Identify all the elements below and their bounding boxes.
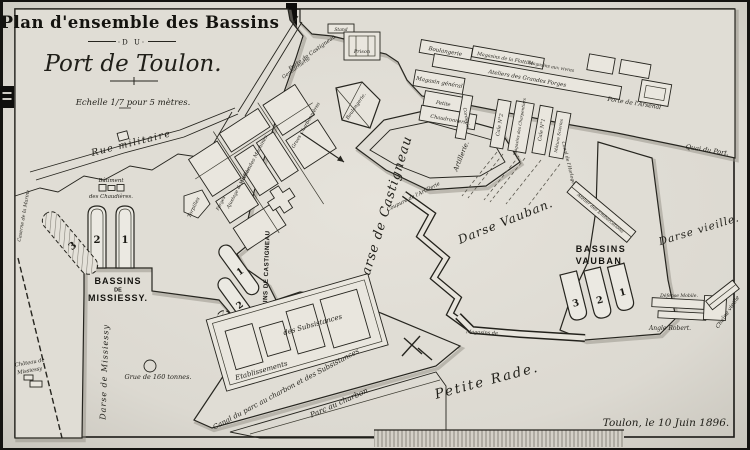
label-angle-robert: Angle Robert.	[648, 325, 691, 332]
title-du: ·D U·	[118, 39, 146, 47]
basin-number-missiessy-1: 1	[122, 235, 129, 246]
prison-building: Prison	[344, 32, 380, 60]
label-bassins-missiessy-3: MISSIESSY.	[88, 293, 148, 303]
map-canvas: Rue militaire Bâtiment des Chaudières. C…	[0, 0, 750, 450]
label-grue-160-tonnes: Grue de 160 tonnes.	[124, 373, 191, 381]
label-bassins-missiessy-1: BASSINS	[94, 276, 141, 286]
map-subtitle: Port de Toulon.	[43, 51, 221, 77]
bottom-shore-band	[374, 430, 624, 447]
label-defense-mobile: Défense Mobile.	[659, 292, 698, 299]
label-batiment-chaudieres-2: des Chaudières.	[89, 193, 133, 200]
label-bassins-vauban-1: BASSINS	[576, 244, 627, 254]
photograph-of-map: Rue militaire Bâtiment des Chaudières. C…	[0, 0, 750, 450]
map-signature-date: Toulon, le 10 Juin 1896.	[603, 417, 730, 429]
map-title: Plan d'ensemble des Bassins	[1, 13, 280, 32]
label-batiment-chaudieres-1: Bâtiment	[97, 177, 124, 184]
basin-number-missiessy-2: 2	[94, 235, 101, 246]
label-prison: Prison	[353, 49, 370, 55]
photo-artifact-plate	[0, 86, 14, 108]
map-scale: Echelle 1/7 pour 5 mètres.	[75, 97, 191, 108]
